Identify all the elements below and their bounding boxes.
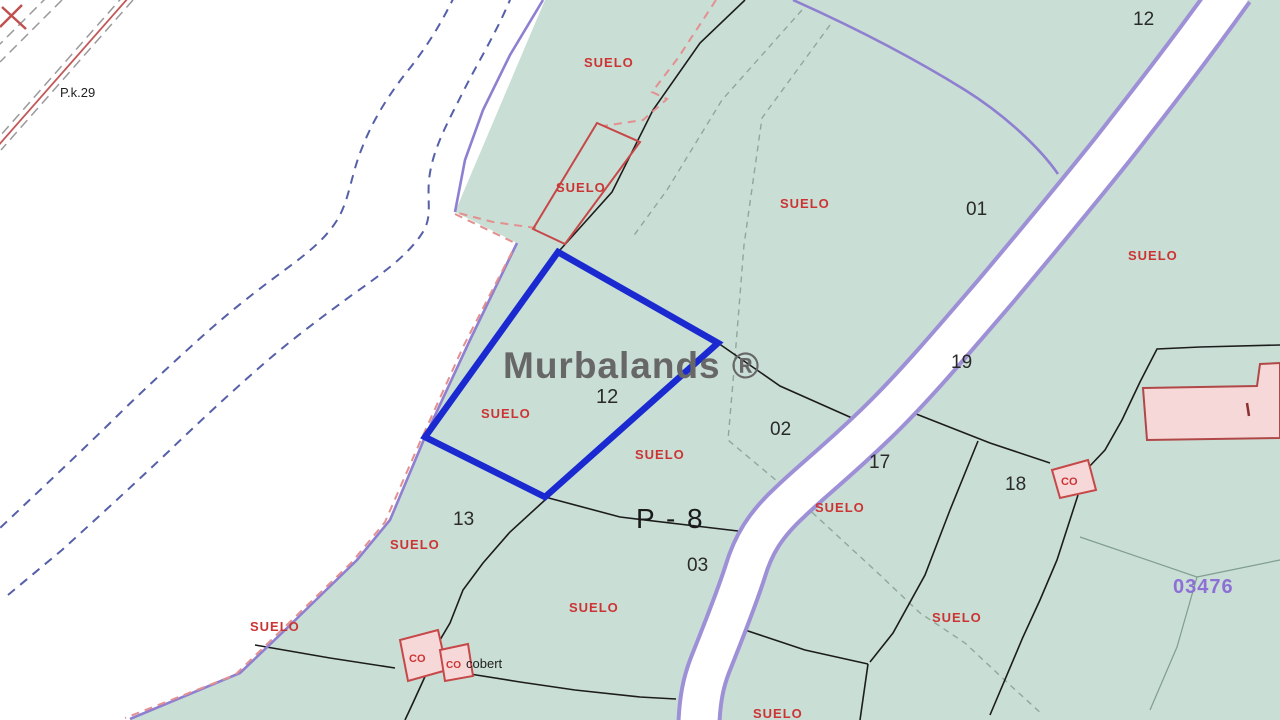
land-type-label: SUELO [584, 55, 634, 70]
parcel-number: 12 [1133, 9, 1154, 30]
land-type-label: SUELO [481, 406, 531, 421]
construction-label: CO [446, 660, 461, 671]
construction-label: CO [409, 653, 426, 665]
map-canvas[interactable]: P.k.29 12 01 19 02 17 18 12 13 03 P - 8 … [0, 0, 1280, 720]
sheet-code-label: 03476 [1173, 576, 1234, 598]
watermark: Murbalands ® [503, 345, 760, 386]
selected-parcel-number: 12 [596, 386, 618, 408]
construction-name-label: cobert [466, 656, 503, 671]
land-type-label: SUELO [556, 180, 606, 195]
land-type-label: SUELO [815, 500, 865, 515]
parcel-number: 17 [869, 452, 890, 473]
parcel-number: 18 [1005, 474, 1026, 495]
land-type-label: SUELO [569, 600, 619, 615]
land-type-label: SUELO [250, 619, 300, 634]
land-type-label: SUELO [635, 447, 685, 462]
land-type-label: SUELO [753, 706, 803, 720]
construction-label: CO [1061, 476, 1078, 488]
parcel-number: 01 [966, 199, 987, 220]
land-type-label: SUELO [932, 610, 982, 625]
cadastral-map-viewport[interactable]: P.k.29 12 01 19 02 17 18 12 13 03 P - 8 … [0, 0, 1280, 720]
land-type-label: SUELO [780, 196, 830, 211]
land-type-label: SUELO [1128, 248, 1178, 263]
parcel-number: 02 [770, 419, 791, 440]
km-post-label: P.k.29 [60, 85, 95, 100]
land-type-label: SUELO [390, 537, 440, 552]
parcel-number: 13 [453, 509, 474, 530]
parcel-number: 03 [687, 555, 708, 576]
zone-label: P - 8 [636, 503, 705, 534]
parcel-number: 19 [951, 352, 972, 373]
